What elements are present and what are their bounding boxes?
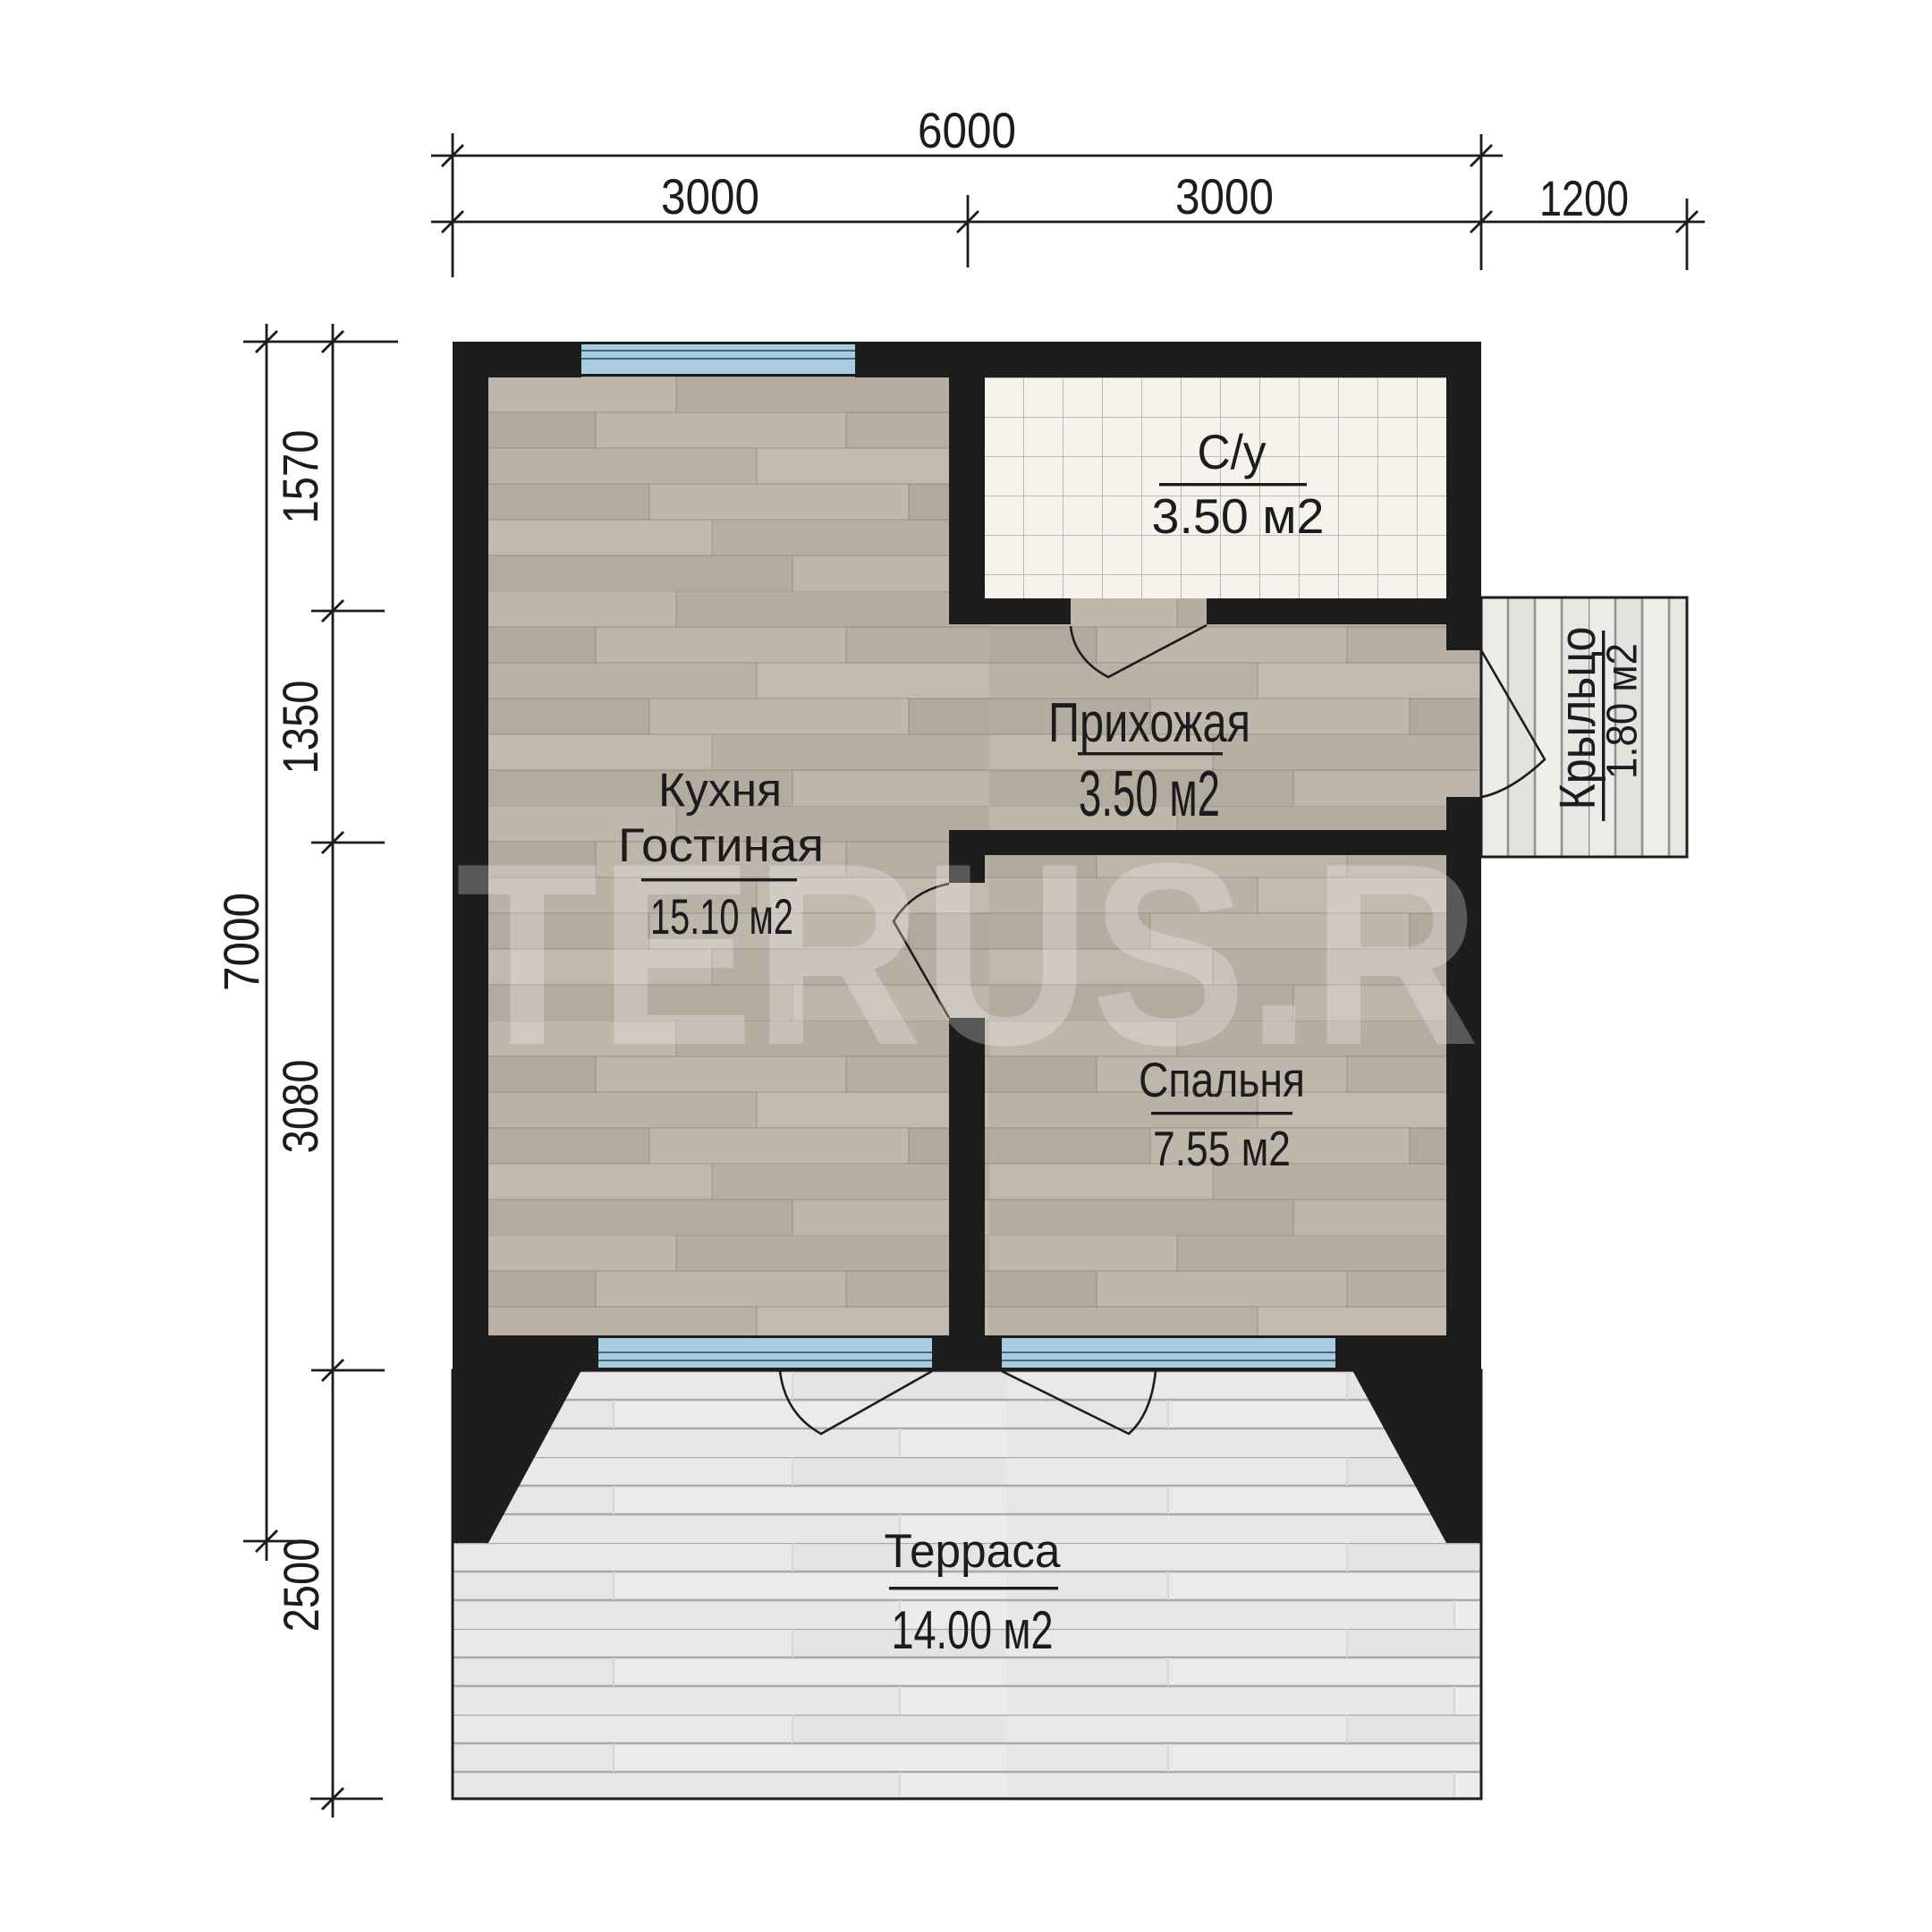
svg-text:Кухня: Кухня [658, 764, 782, 817]
svg-text:С/у: С/у [1198, 424, 1267, 479]
svg-text:1570: 1570 [272, 430, 328, 524]
svg-text:1200: 1200 [1539, 170, 1629, 226]
svg-text:15.10 м2: 15.10 м2 [650, 888, 793, 945]
svg-text:1.80 м2: 1.80 м2 [1599, 643, 1647, 779]
svg-text:7.55 м2: 7.55 м2 [1153, 1121, 1291, 1176]
svg-text:2500: 2500 [273, 1538, 329, 1632]
svg-text:3.50 м2: 3.50 м2 [1079, 758, 1220, 830]
svg-text:7000: 7000 [213, 893, 269, 991]
svg-text:1350: 1350 [272, 681, 328, 775]
svg-text:3000: 3000 [661, 168, 759, 225]
svg-text:Спальня: Спальня [1139, 1052, 1305, 1107]
svg-text:TERUS.R: TERUS.R [456, 809, 1480, 1099]
svg-text:Прихожая: Прихожая [1048, 692, 1250, 754]
svg-text:3080: 3080 [272, 1060, 328, 1154]
svg-text:3.50 м2: 3.50 м2 [1152, 488, 1325, 544]
svg-text:14.00 м2: 14.00 м2 [892, 1600, 1054, 1660]
svg-text:3000: 3000 [1175, 168, 1274, 225]
svg-text:Терраса: Терраса [885, 1525, 1062, 1578]
svg-text:Крыльцо: Крыльцо [1549, 627, 1606, 810]
svg-text:Гостиная: Гостиная [618, 819, 824, 872]
svg-text:6000: 6000 [918, 102, 1016, 158]
